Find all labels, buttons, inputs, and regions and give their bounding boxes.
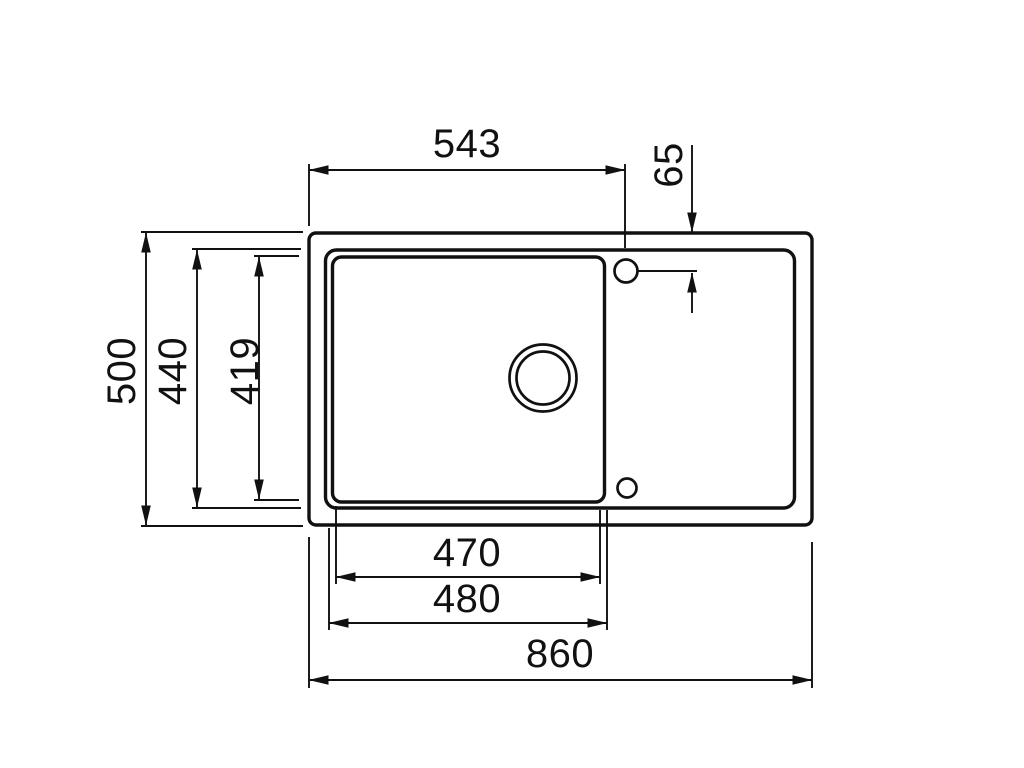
dim-500-label: 500 [100, 337, 144, 405]
sink-outer-edge [309, 233, 812, 525]
dim-419-label: 419 [223, 337, 267, 405]
tap-hole [615, 260, 638, 283]
dim-419: 419 [223, 256, 299, 500]
dim-543: 543 [309, 122, 625, 248]
dim-480-label: 480 [433, 577, 501, 621]
dim-470: 470 [336, 506, 600, 584]
dim-543-label: 543 [433, 122, 501, 166]
dim-470-label: 470 [433, 531, 501, 575]
drawing-canvas: 543 65 500 440 419 [0, 0, 1024, 768]
dim-440-label: 440 [151, 337, 195, 405]
sink-technical-drawing: 543 65 500 440 419 [0, 0, 1024, 768]
dim-860-label: 860 [526, 632, 594, 676]
sink-rim-edge [326, 250, 795, 508]
bowl-edge [333, 257, 605, 502]
dim-860: 860 [309, 537, 812, 688]
dim-65: 65 [637, 142, 697, 313]
drain-outer-circle [510, 345, 577, 412]
dim-65-label: 65 [647, 142, 691, 188]
overflow-hole [618, 479, 637, 498]
dim-500: 500 [100, 232, 303, 526]
drain-inner-circle [517, 352, 570, 405]
sink-outline [309, 233, 812, 525]
